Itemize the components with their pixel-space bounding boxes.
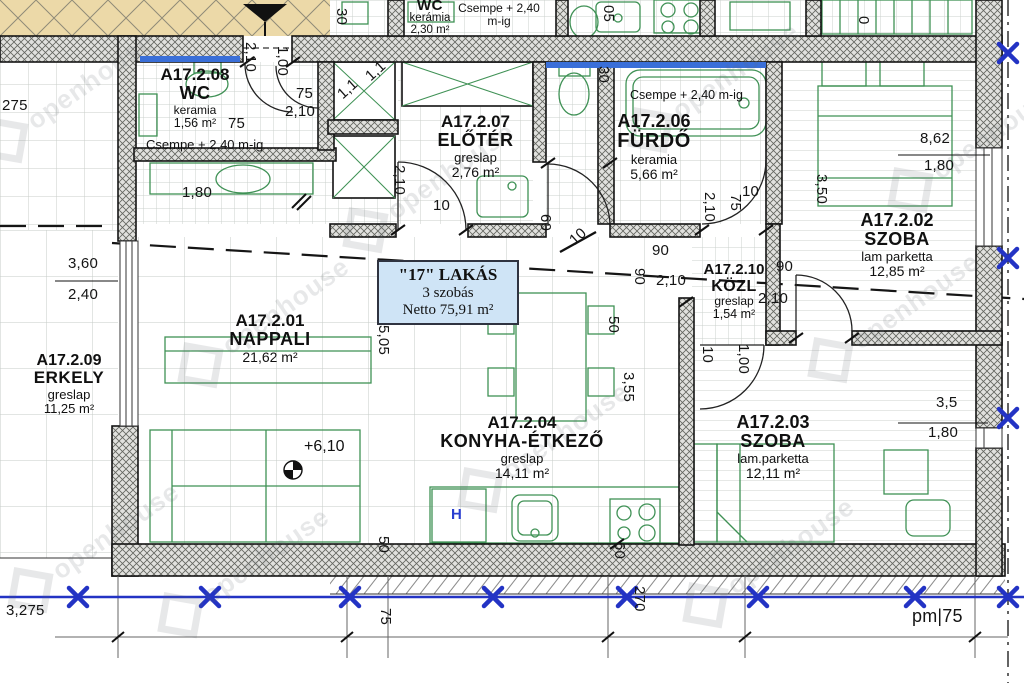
elevation-marker-icon <box>284 461 302 479</box>
apartment-rooms-count: 3 szobás <box>381 285 515 302</box>
apartment-title: "17" LAKÁS <box>381 265 515 285</box>
floorplan-drawing <box>0 0 1024 683</box>
apartment-title-box: "17" LAKÁS 3 szobás Netto 75,91 m² <box>377 260 519 325</box>
apartment-net-area: Netto 75,91 m² <box>381 302 515 319</box>
floorplan: openhouseopenhouseopenhouseopenhouseopen… <box>0 0 1024 683</box>
